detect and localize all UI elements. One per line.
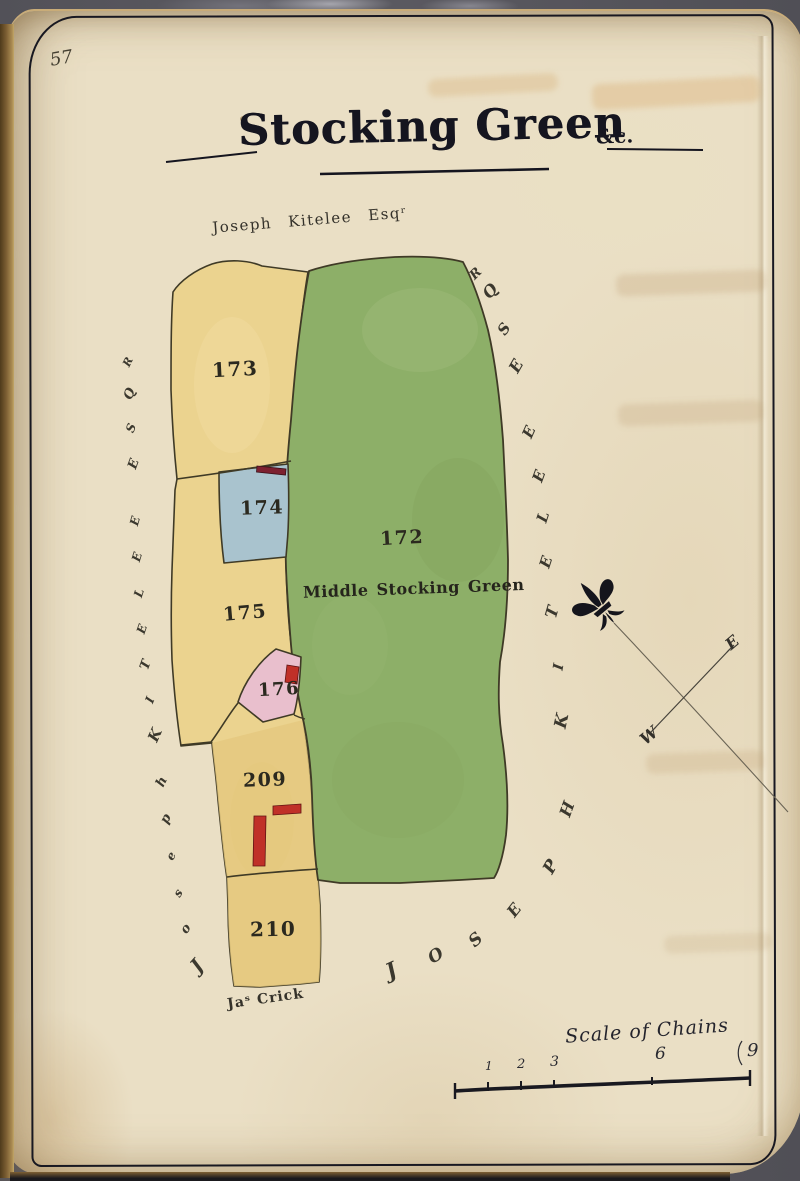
parcel-number-175: 175	[222, 600, 268, 626]
parcel-number-176: 176	[257, 678, 300, 701]
title-underline-center	[320, 169, 549, 174]
title-underline-right	[607, 149, 703, 150]
parcel-number-174: 174	[240, 496, 285, 520]
map-title: Stocking Green	[238, 102, 602, 152]
building	[253, 816, 266, 866]
scale-tick-label: 9	[747, 1040, 758, 1061]
scanned-atlas-page: 57 Stocking Green &c. Joseph Kitelee Esq…	[0, 0, 800, 1181]
scale-tick-label: 1	[485, 1059, 493, 1073]
scale-flourish	[738, 1041, 742, 1065]
east-west-line	[652, 649, 730, 731]
wash-mottle	[332, 722, 464, 838]
parcel-number-209: 209	[243, 768, 288, 792]
map-title-text: Stocking Green	[238, 98, 627, 156]
parcel-209-210-tint	[212, 720, 321, 987]
wash-mottle	[412, 458, 504, 582]
parcel-number-172: 172	[379, 526, 424, 550]
paper-mottle	[194, 317, 270, 453]
page-number: 57	[48, 46, 74, 71]
parcel-number-173: 173	[211, 356, 258, 382]
scale-tick-label: 6	[655, 1044, 666, 1064]
scale-tick-label: 2	[517, 1057, 525, 1072]
map-title-suffix: &c.	[596, 123, 634, 148]
scale-bar-line	[455, 1078, 750, 1091]
building	[273, 804, 301, 815]
north-fleur-de-lis-icon	[562, 567, 634, 639]
wash-mottle	[362, 288, 478, 372]
parcel-number-210: 210	[250, 917, 297, 942]
wash-mottle	[312, 595, 388, 695]
scale-tick-label: 3	[550, 1054, 559, 1070]
meridian-line	[614, 623, 788, 812]
